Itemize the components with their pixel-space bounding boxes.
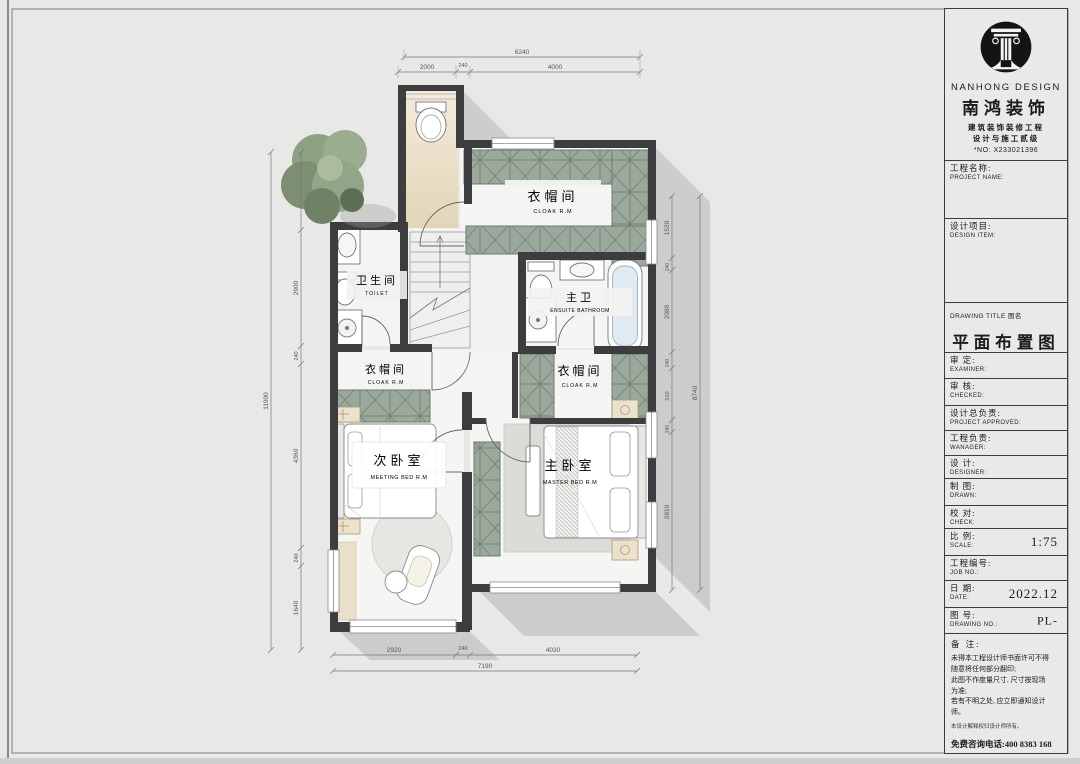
company-logo-block: NANHONG DESIGN 南鸿装饰 建筑装饰装修工程 设计与施工贰级 *NO…: [945, 9, 1067, 161]
room-label-cloak-top: 衣帽间 CLOAK R.M: [505, 180, 601, 218]
nanhong-column-logo-icon: [978, 19, 1034, 75]
field-manager: 工程负责: WANAGER:: [945, 431, 1067, 456]
field-label-cn: 设计项目:: [950, 221, 1062, 232]
svg-text:衣帽间: 衣帽间: [557, 363, 602, 378]
svg-text:CLOAK R.M: CLOAK R.M: [368, 380, 405, 386]
tree: [281, 130, 396, 228]
cert-number: *NO: X233021396: [945, 147, 1067, 154]
svg-text:240: 240: [665, 359, 671, 368]
svg-text:4000: 4000: [548, 64, 563, 71]
field-label-en: EXAMINER:: [950, 367, 1062, 375]
svg-text:主卫: 主卫: [566, 291, 594, 304]
room-label-toilet: 卫生间 TOILET: [347, 271, 407, 299]
drawing-title-block: DRAWING TITLE 图名 平面布置图: [945, 303, 1067, 353]
svg-text:240: 240: [458, 646, 467, 652]
svg-text:2810: 2810: [664, 504, 671, 519]
field-project-approved: 设计总负责: PROJECT APPROVED:: [945, 406, 1067, 431]
notes-title: 备 注:: [951, 638, 1061, 650]
dim-left: [268, 149, 304, 653]
staircase: [410, 232, 470, 348]
room-label-ensuite: 主卫 ENSUITE BATHROOM: [528, 288, 632, 316]
svg-text:2920: 2920: [387, 647, 402, 654]
field-check: 校 对: CHECK:: [945, 506, 1067, 529]
field-drawing-no: 图 号: DRAWING NO.: PL-: [945, 608, 1067, 634]
svg-text:TOILET: TOILET: [365, 291, 388, 297]
field-label-cn: 工程负责:: [950, 433, 1062, 444]
field-label-cn: 设 计:: [950, 458, 1062, 469]
bench: [526, 446, 540, 516]
svg-text:240: 240: [294, 553, 300, 562]
svg-text:240: 240: [665, 263, 671, 272]
svg-text:2000: 2000: [420, 64, 435, 71]
svg-text:CLOAK R.M: CLOAK R.M: [562, 383, 599, 389]
drawing-sheet: 衣帽间 CLOAK R.M 卫生间 TOILET 主卫 ENSUITE BATH…: [0, 0, 1080, 764]
field-design-item: 设计项目: DESIGN ITEM:: [945, 219, 1067, 303]
field-designer: 设 计: DESIGNER:: [945, 456, 1067, 479]
field-label-en: DESIGNER:: [950, 470, 1062, 478]
nightstand: [612, 400, 638, 420]
pillow: [610, 432, 630, 476]
svg-text:8740: 8740: [692, 385, 699, 400]
room-label-master: 主卧室 MASTER BED R.M: [543, 458, 597, 486]
note-fine-print: 本设计解释权归设计师所有。: [951, 722, 1061, 730]
cert-line1: 建筑装饰装修工程: [968, 123, 1044, 132]
field-label-cn: 工程编号:: [950, 558, 1062, 569]
brand-name-cn: 南鸿装饰: [945, 94, 1067, 119]
field-label-en: DESIGN ITEM:: [950, 233, 1062, 241]
room-label-bedroom2: 次卧室 MEETING BED R.M: [352, 442, 446, 488]
field-label-cn: 设计总负责:: [950, 408, 1062, 419]
svg-text:240: 240: [458, 63, 467, 69]
field-examiner: 审 定: EXAMINER:: [945, 353, 1067, 379]
svg-text:2900: 2900: [293, 280, 300, 295]
field-job-no: 工程编号: JOB NO.:: [945, 556, 1067, 581]
room-label-cloak-right: 衣帽间 CLOAK R.M: [557, 363, 602, 389]
note-line: 未得本工程设计师书面许可不得: [951, 653, 1061, 664]
svg-text:7190: 7190: [478, 663, 493, 670]
note-line: 若有不明之处, 应立即通知设计: [951, 696, 1061, 707]
svg-text:衣帽间: 衣帽间: [365, 362, 407, 376]
svg-text:CLOAK R.M: CLOAK R.M: [533, 209, 572, 215]
field-label-en: DRAWN:: [950, 493, 1062, 501]
svg-text:4030: 4030: [546, 647, 561, 654]
drawing-no-value: PL-: [1037, 613, 1058, 628]
field-label-en: PROJECT NAME:: [950, 175, 1062, 183]
note-line: 师。: [951, 707, 1061, 718]
date-value: 2022.12: [1009, 586, 1058, 602]
field-drawn: 制 图: DRAWN:: [945, 479, 1067, 506]
field-label-en: WANAGER:: [950, 445, 1062, 453]
notes-block: 备 注: 未得本工程设计师书面许可不得 随意将任何部分翻印; 此图不作度量尺寸,…: [945, 634, 1067, 754]
hotline: 免费咨询电话:400 8383 168: [951, 738, 1061, 750]
field-label-cn: 审 定:: [950, 355, 1062, 366]
svg-text:6240: 6240: [515, 49, 530, 56]
field-label-en: CHECK:: [950, 520, 1062, 528]
pillow: [610, 488, 630, 532]
note-line: 为准;: [951, 686, 1061, 697]
svg-text:ENSUITE BATHROOM: ENSUITE BATHROOM: [550, 308, 610, 314]
field-label-cn: 工程名称:: [950, 163, 1062, 174]
field-date: 日 期: DATE: 2022.12: [945, 581, 1067, 608]
field-label-en: JOB NO.:: [950, 570, 1062, 578]
floor-plan-canvas: 衣帽间 CLOAK R.M 卫生间 TOILET 主卫 ENSUITE BATH…: [0, 0, 1080, 764]
drawing-title: 平面布置图: [950, 329, 1062, 353]
stool: [385, 571, 407, 593]
brand-name-en: NANHONG DESIGN: [945, 82, 1067, 93]
cert-line2: 设计与施工贰级: [973, 134, 1040, 143]
field-project-name: 工程名称: PROJECT NAME:: [945, 161, 1067, 219]
scale-value: 1:75: [1031, 534, 1058, 550]
svg-text:510: 510: [665, 391, 671, 400]
svg-text:11900: 11900: [263, 392, 270, 410]
title-block: NANHONG DESIGN 南鸿装饰 建筑装饰装修工程 设计与施工贰级 *NO…: [944, 8, 1068, 754]
note-line: 随意将任何部分翻印;: [951, 664, 1061, 675]
field-label-cn: 校 对:: [950, 508, 1062, 519]
drawing-title-label: DRAWING TITLE 图名: [950, 313, 1022, 320]
field-label-cn: 制 图:: [950, 481, 1062, 492]
field-checked: 审 核: CHECKED:: [945, 379, 1067, 406]
field-label-cn: 审 核:: [950, 381, 1062, 392]
svg-text:MEETING BED R.M: MEETING BED R.M: [370, 475, 427, 481]
svg-text:1640: 1640: [293, 600, 300, 615]
svg-text:1520: 1520: [664, 220, 671, 235]
svg-text:2080: 2080: [664, 304, 671, 319]
field-label-en: PROJECT APPROVED:: [950, 420, 1062, 428]
field-label-en: CHECKED:: [950, 393, 1062, 401]
room-label-cloak-left: 衣帽间 CLOAK R.M: [365, 362, 407, 386]
svg-text:衣帽间: 衣帽间: [527, 189, 578, 204]
svg-text:240: 240: [665, 425, 671, 434]
svg-text:240: 240: [294, 351, 300, 360]
svg-text:主卧室: 主卧室: [544, 458, 595, 473]
svg-text:MASTER BED R.M: MASTER BED R.M: [543, 480, 597, 486]
toilet-fixture: [416, 108, 446, 142]
nightstand: [612, 540, 638, 560]
field-scale: 比 例: SCALE: 1:75: [945, 529, 1067, 556]
svg-text:次卧室: 次卧室: [373, 453, 424, 468]
svg-text:4360: 4360: [293, 448, 300, 463]
svg-text:卫生间: 卫生间: [356, 273, 398, 287]
note-line: 此图不作度量尺寸, 尺寸按现场: [951, 675, 1061, 686]
